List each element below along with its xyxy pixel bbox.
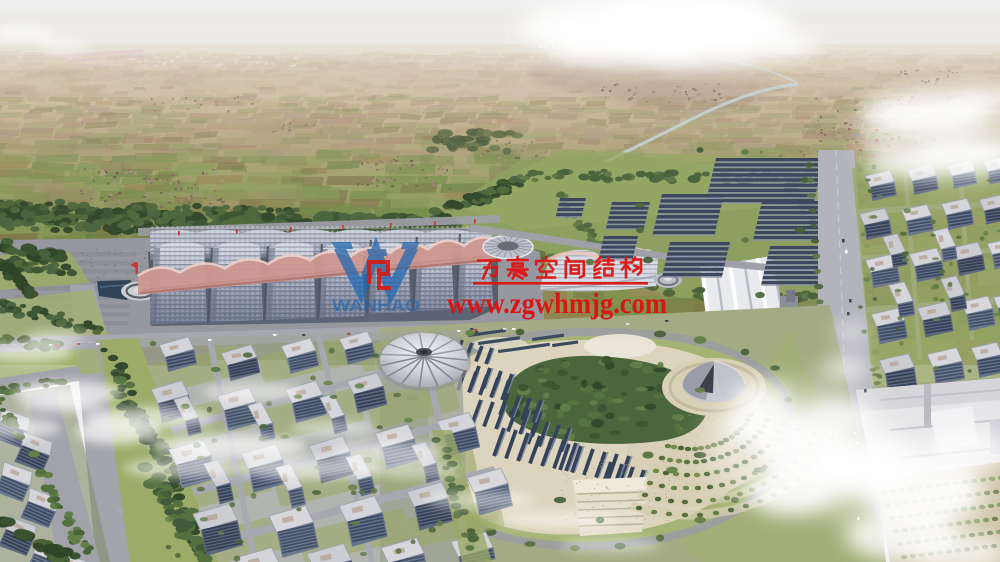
svg-text:www.zgwhmjg.com: www.zgwhmjg.com: [447, 287, 667, 320]
svg-text:WANHAO: WANHAO: [332, 296, 420, 315]
